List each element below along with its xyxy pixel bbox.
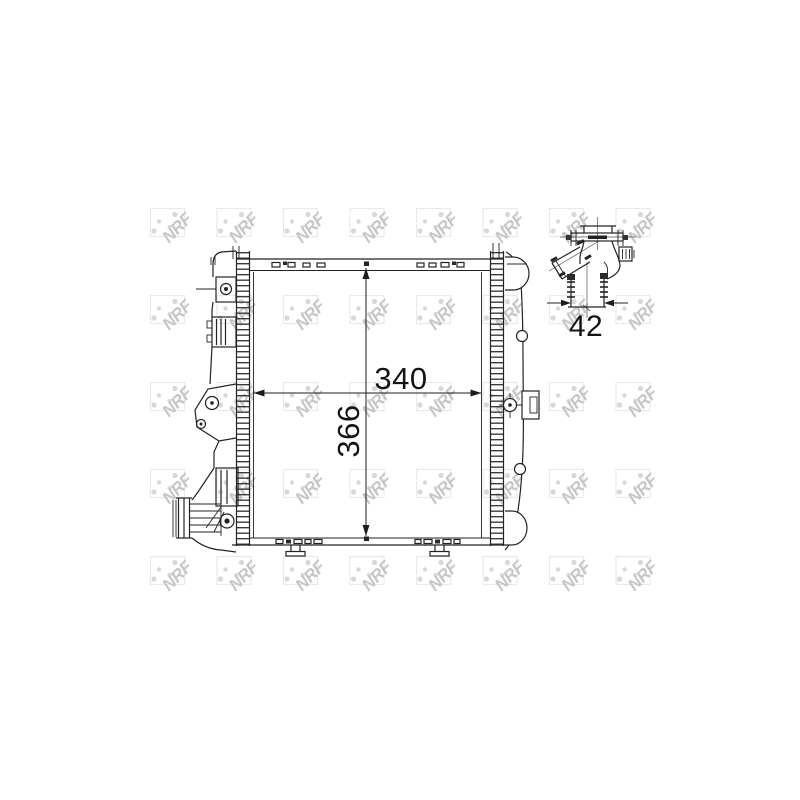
side-bump-lower xyxy=(515,464,526,475)
watermark-tile xyxy=(417,557,463,595)
watermark-tile xyxy=(616,296,662,334)
watermark-tile xyxy=(417,209,463,247)
arrowhead-right-icon xyxy=(561,300,571,306)
watermark-tile xyxy=(350,557,396,595)
upper-bracket xyxy=(196,277,236,302)
top-center-slot xyxy=(364,262,369,267)
top-tank-bar xyxy=(233,243,504,271)
radiator-front-view xyxy=(173,243,539,556)
side-bump-upper xyxy=(517,331,528,342)
watermark-tile xyxy=(350,296,396,334)
watermark-tile xyxy=(616,470,662,508)
arrowhead-up-icon xyxy=(363,268,370,279)
watermark-tile xyxy=(417,470,463,508)
arrowhead-right-icon xyxy=(471,390,482,397)
watermark-tile xyxy=(417,296,463,334)
watermark-tile xyxy=(616,383,662,421)
mounting-foot-left xyxy=(286,545,305,556)
dimension-height-label: 366 xyxy=(331,404,366,457)
watermark-tile xyxy=(350,209,396,247)
radiator-drawing-page: NRF xyxy=(0,0,800,800)
watermark-tile xyxy=(550,557,596,595)
watermark-tile xyxy=(616,557,662,595)
watermark-tile xyxy=(350,470,396,508)
bottom-tank-bar xyxy=(232,537,505,557)
fitting-right-stub xyxy=(619,247,634,261)
watermark-tile xyxy=(284,296,330,334)
top-hose-stub xyxy=(505,257,529,290)
watermark-tile xyxy=(217,296,263,334)
radiator-diagram: NRF xyxy=(0,0,800,800)
watermark-tile xyxy=(284,209,330,247)
watermark-tile xyxy=(151,557,197,595)
arrowhead-left-icon xyxy=(604,300,614,306)
watermark-tile xyxy=(284,383,330,421)
dimension-width-label: 340 xyxy=(374,361,427,396)
dimension-diameter-label: 42 xyxy=(569,310,603,343)
watermark-tile xyxy=(151,209,197,247)
watermark-tile xyxy=(217,557,263,595)
watermark-tile xyxy=(151,383,197,421)
watermark-tile xyxy=(284,557,330,595)
bottom-center-slot xyxy=(364,537,369,542)
watermark-tile xyxy=(483,209,529,247)
watermark-grid xyxy=(151,209,662,595)
arrowhead-down-icon xyxy=(363,525,370,536)
watermark-tile xyxy=(483,557,529,595)
mounting-foot-right xyxy=(430,545,449,556)
bottom-hose-stub xyxy=(505,511,527,545)
watermark-tile xyxy=(217,209,263,247)
watermark-tile xyxy=(151,296,197,334)
watermark-tile xyxy=(284,470,330,508)
watermark-tile xyxy=(550,383,596,421)
watermark-tile xyxy=(550,470,596,508)
